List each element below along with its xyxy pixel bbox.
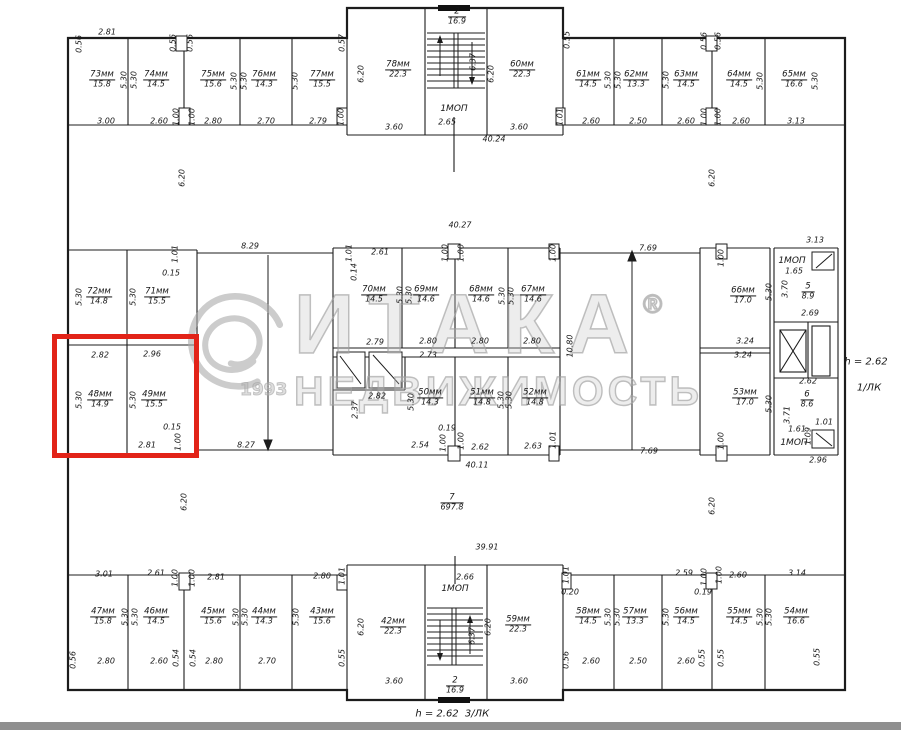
dimension-label: 1.65	[785, 268, 803, 277]
dimension-label: 5.30	[293, 608, 302, 626]
dimension-label: 1.00	[716, 566, 725, 584]
dimension-label: 5.30	[231, 72, 240, 90]
dimension-label: 5.30	[615, 71, 624, 89]
dimension-label: 6.20	[709, 169, 718, 187]
dimension-label: 0.55	[814, 648, 823, 666]
room-label: 64мм14.5	[726, 70, 752, 89]
room-label: 50мм14.3	[417, 388, 443, 407]
dimension-label: 2.96	[809, 457, 827, 466]
dimension-label: 2.54	[411, 442, 429, 451]
room-label: 72мм14.8	[86, 287, 112, 306]
dimension-label: 3.00	[97, 118, 115, 127]
dimension-label: 2.66	[456, 574, 474, 583]
dimension-label: 3.60	[510, 124, 528, 133]
dimension-label: 0.14	[351, 263, 360, 281]
dimension-label: 2.60	[729, 572, 747, 581]
dimension-label: 2.60	[677, 118, 695, 127]
dimension-label: 2.80	[419, 338, 437, 347]
dimension-label: 1.00	[189, 569, 198, 587]
dimension-label: 7.69	[640, 448, 658, 457]
dimension-label: 5.30	[132, 608, 141, 626]
room-label: 61мм14.5	[575, 70, 601, 89]
dimension-label: 1.00	[718, 249, 727, 267]
dimension-label: 5.30	[122, 608, 131, 626]
dimension-label: 6.20	[488, 65, 497, 83]
dimension-label: 2.60	[732, 118, 750, 127]
dimension-label: 1.01	[550, 431, 559, 449]
dimension-label: 3.14	[788, 570, 806, 579]
room-label: 77мм15.5	[309, 70, 335, 89]
floorplan-page: ИТАКА® 1993 НЕДВИЖИМОСТЬ 0.562.810.560.5…	[0, 0, 901, 730]
area-label: 216.9	[446, 676, 464, 695]
dimension-label: 1.00	[718, 432, 727, 450]
dimension-label: 0.19	[694, 589, 712, 598]
dimension-label: 1.01	[346, 244, 355, 262]
dimension-label: 1.00	[442, 244, 451, 262]
dimension-label: 5.30	[121, 71, 130, 89]
dimension-label: 2.69	[801, 310, 819, 319]
dimension-label: 1.01	[563, 566, 572, 584]
dimension-label: 5.30	[76, 288, 85, 306]
dimension-label: 39.91	[476, 544, 499, 553]
dimension-label: 2.80	[523, 338, 541, 347]
dimension-label: 2.50	[629, 658, 647, 667]
floor-height-note-bottom: h = 2.62	[415, 709, 458, 720]
dimension-label: 2.60	[150, 118, 168, 127]
room-label: 76мм14.3	[251, 70, 277, 89]
dimension-label: 5.30	[766, 608, 775, 626]
dimension-label: 2.80	[205, 658, 223, 667]
room-label: 58мм14.5	[575, 607, 601, 626]
room-label: 46мм14.5	[143, 607, 169, 626]
room-label: 51мм14.8	[469, 388, 495, 407]
room-label: 73мм15.8	[89, 70, 115, 89]
dimension-label: 10.80	[567, 335, 576, 358]
room-label: 53мм17.0	[732, 388, 758, 407]
room-label: 56мм14.5	[673, 607, 699, 626]
dimension-label: 2.80	[97, 658, 115, 667]
dimension-label: 3.70	[782, 280, 791, 298]
dimension-label: 8.29	[241, 243, 259, 252]
dimension-label: 7.69	[639, 245, 657, 254]
dimension-label: 40.11	[466, 462, 489, 471]
dimension-label: 2.60	[677, 658, 695, 667]
dimension-label: 2.50	[629, 118, 647, 127]
room-label: 52мм14.8	[522, 388, 548, 407]
dimension-label: 1.01	[172, 245, 181, 263]
dimension-label: 40.27	[449, 222, 472, 231]
dimension-label: 0.55	[699, 649, 708, 667]
dimension-label: 8.27	[237, 442, 255, 451]
dimension-label: 2.60	[582, 658, 600, 667]
room-label: 62мм13.3	[623, 70, 649, 89]
dimension-label: 3.24	[734, 352, 752, 361]
dimension-label: 0.56	[70, 651, 79, 669]
dimension-label: 5.30	[241, 72, 250, 90]
dimension-label: 1.00	[550, 244, 559, 262]
dimension-label: 0.56	[76, 35, 85, 53]
dimension-label: 0.54	[173, 649, 182, 667]
dimension-label: 0.54	[190, 649, 199, 667]
dimension-label: 1.00	[172, 569, 181, 587]
common-area-label: 1МОП	[440, 105, 467, 115]
dimension-label: 2.81	[207, 574, 225, 583]
dimension-label: 6.37	[469, 627, 478, 645]
dimension-label: 5.30	[757, 72, 766, 90]
room-label: 45мм15.6	[200, 607, 226, 626]
area-label: 68.6	[801, 390, 814, 409]
dimension-label: 2.79	[309, 118, 327, 127]
room-label: 65мм16.6	[781, 70, 807, 89]
dimension-label: 2.80	[204, 118, 222, 127]
dimension-label: 6.20	[485, 618, 494, 636]
room-label: 54мм16.6	[783, 607, 809, 626]
dimension-label: 2.63	[524, 443, 542, 452]
dimension-label: 1.00	[173, 108, 182, 126]
dimension-label: 2.65	[438, 119, 456, 128]
room-label: 42мм22.3	[380, 617, 406, 636]
dimension-label: 5.30	[766, 395, 775, 413]
room-label: 57мм13.3	[622, 607, 648, 626]
dimension-label: 6.20	[179, 169, 188, 187]
dimension-label: 3.60	[510, 678, 528, 687]
room-label: 43мм15.6	[309, 607, 335, 626]
dimension-label: 2.61	[371, 249, 389, 258]
room-label: 60мм22.3	[509, 60, 535, 79]
dimension-label: 5.30	[605, 71, 614, 89]
common-area-label: 1МОП	[441, 585, 468, 595]
dimension-label: 2.59	[675, 570, 693, 579]
room-label: 68мм14.6	[468, 285, 494, 304]
area-label: 7697.8	[441, 493, 464, 512]
dimension-label: 2.62	[471, 444, 489, 453]
dimension-label: 0.56	[715, 32, 724, 50]
dimension-label: 0.19	[438, 425, 456, 434]
dimension-label: 1.00	[189, 108, 198, 126]
dimension-label: 3.60	[385, 678, 403, 687]
dimension-label: 0.56	[563, 651, 572, 669]
dimension-label: 6.20	[709, 497, 718, 515]
room-label: 55мм14.5	[726, 607, 752, 626]
dimension-label: 5.30	[292, 72, 301, 90]
area-label: 216.9	[448, 7, 466, 26]
room-label: 71мм15.5	[144, 287, 170, 306]
dimension-label: 2.60	[582, 118, 600, 127]
dimension-label: 2.81	[98, 29, 116, 38]
dimension-label: 1.00	[458, 432, 467, 450]
dimension-label: 5.30	[508, 287, 517, 305]
dimension-label: 5.30	[766, 283, 775, 301]
dimension-label: 1.00	[701, 108, 710, 126]
room-label: 67мм14.6	[520, 285, 546, 304]
dimension-label: 1.00	[440, 434, 449, 452]
dimension-label: 2.80	[313, 573, 331, 582]
dimension-label: 6.20	[358, 65, 367, 83]
dimension-label: 5.30	[131, 71, 140, 89]
dimension-label: 0.55	[339, 649, 348, 667]
dimension-label: 2.60	[150, 658, 168, 667]
dimension-label: 0.55	[564, 31, 573, 49]
dimension-label: 0.15	[162, 270, 180, 279]
dimension-label: 3.13	[787, 118, 805, 127]
dimension-label: 3.13	[806, 237, 824, 246]
selected-units-highlight	[52, 334, 199, 458]
stairwell-note-right: 1/ЛК	[857, 383, 881, 394]
dimension-label: 0.20	[561, 589, 579, 598]
dimension-label: 6.20	[181, 493, 190, 511]
dimension-label: 5.30	[663, 608, 672, 626]
dimension-label: 1.00	[715, 108, 724, 126]
common-area-label: 1МОП	[780, 439, 807, 449]
dimension-label: 0.57	[339, 34, 348, 52]
dimension-label: 5.30	[663, 71, 672, 89]
room-label: 59мм22.3	[505, 615, 531, 634]
floor-height-note-right: h = 2.62	[844, 357, 887, 368]
dimension-label: 2.37	[352, 401, 361, 419]
dimension-label: 2.70	[258, 658, 276, 667]
dimension-label: 1.01	[557, 108, 566, 126]
dimension-label: 0.56	[170, 34, 179, 52]
bottom-scrollbar[interactable]	[0, 722, 901, 730]
dimension-label: 0.56	[187, 34, 196, 52]
dimension-label: 2.70	[257, 118, 275, 127]
room-label: 44мм14.3	[251, 607, 277, 626]
dimension-label: 5.30	[130, 288, 139, 306]
dimension-label: 3.01	[95, 571, 113, 580]
dimension-label: 6.20	[358, 618, 367, 636]
dimension-label: 2.79	[366, 339, 384, 348]
room-label: 69мм14.6	[413, 285, 439, 304]
dimension-label: 1.01	[339, 567, 348, 585]
room-label: 70мм14.5	[361, 285, 387, 304]
room-label: 74мм14.5	[143, 70, 169, 89]
dimension-label: 2.73	[419, 352, 437, 361]
dimension-label: 5.30	[812, 72, 821, 90]
room-label: 66мм17.0	[730, 286, 756, 305]
area-label: 58.9	[802, 282, 815, 301]
dimension-label: 40.24	[483, 136, 506, 145]
room-label: 78мм22.3	[385, 60, 411, 79]
room-label: 47мм15.8	[90, 607, 116, 626]
dimension-label: 3.60	[385, 124, 403, 133]
dimension-label: 3.24	[736, 338, 754, 347]
dimension-label: 1.00	[701, 568, 710, 586]
dimension-label: 0.56	[701, 32, 710, 50]
dimension-label: 5.30	[614, 608, 623, 626]
dimension-label: 1.01	[815, 419, 833, 428]
dimension-label: 5.30	[506, 391, 515, 409]
dimension-label: 2.82	[368, 393, 386, 402]
dimension-label: 1.00	[458, 244, 467, 262]
dimension-label: 6.37	[470, 53, 479, 71]
dimension-label: 2.80	[471, 338, 489, 347]
common-area-label: 1МОП	[778, 257, 805, 267]
dimension-label: 2.61	[147, 570, 165, 579]
room-label: 63мм14.5	[673, 70, 699, 89]
dimension-label: 2.62	[799, 378, 817, 387]
room-label: 75мм15.6	[200, 70, 226, 89]
dimension-label: 3.71	[784, 406, 793, 424]
dimension-label: 5.30	[408, 393, 417, 411]
dimension-label: 5.30	[242, 608, 251, 626]
dimension-label: 0.55	[718, 649, 727, 667]
stairwell-note-bottom: 3/ЛК	[465, 709, 489, 720]
dimension-label: 1.00	[338, 108, 347, 126]
